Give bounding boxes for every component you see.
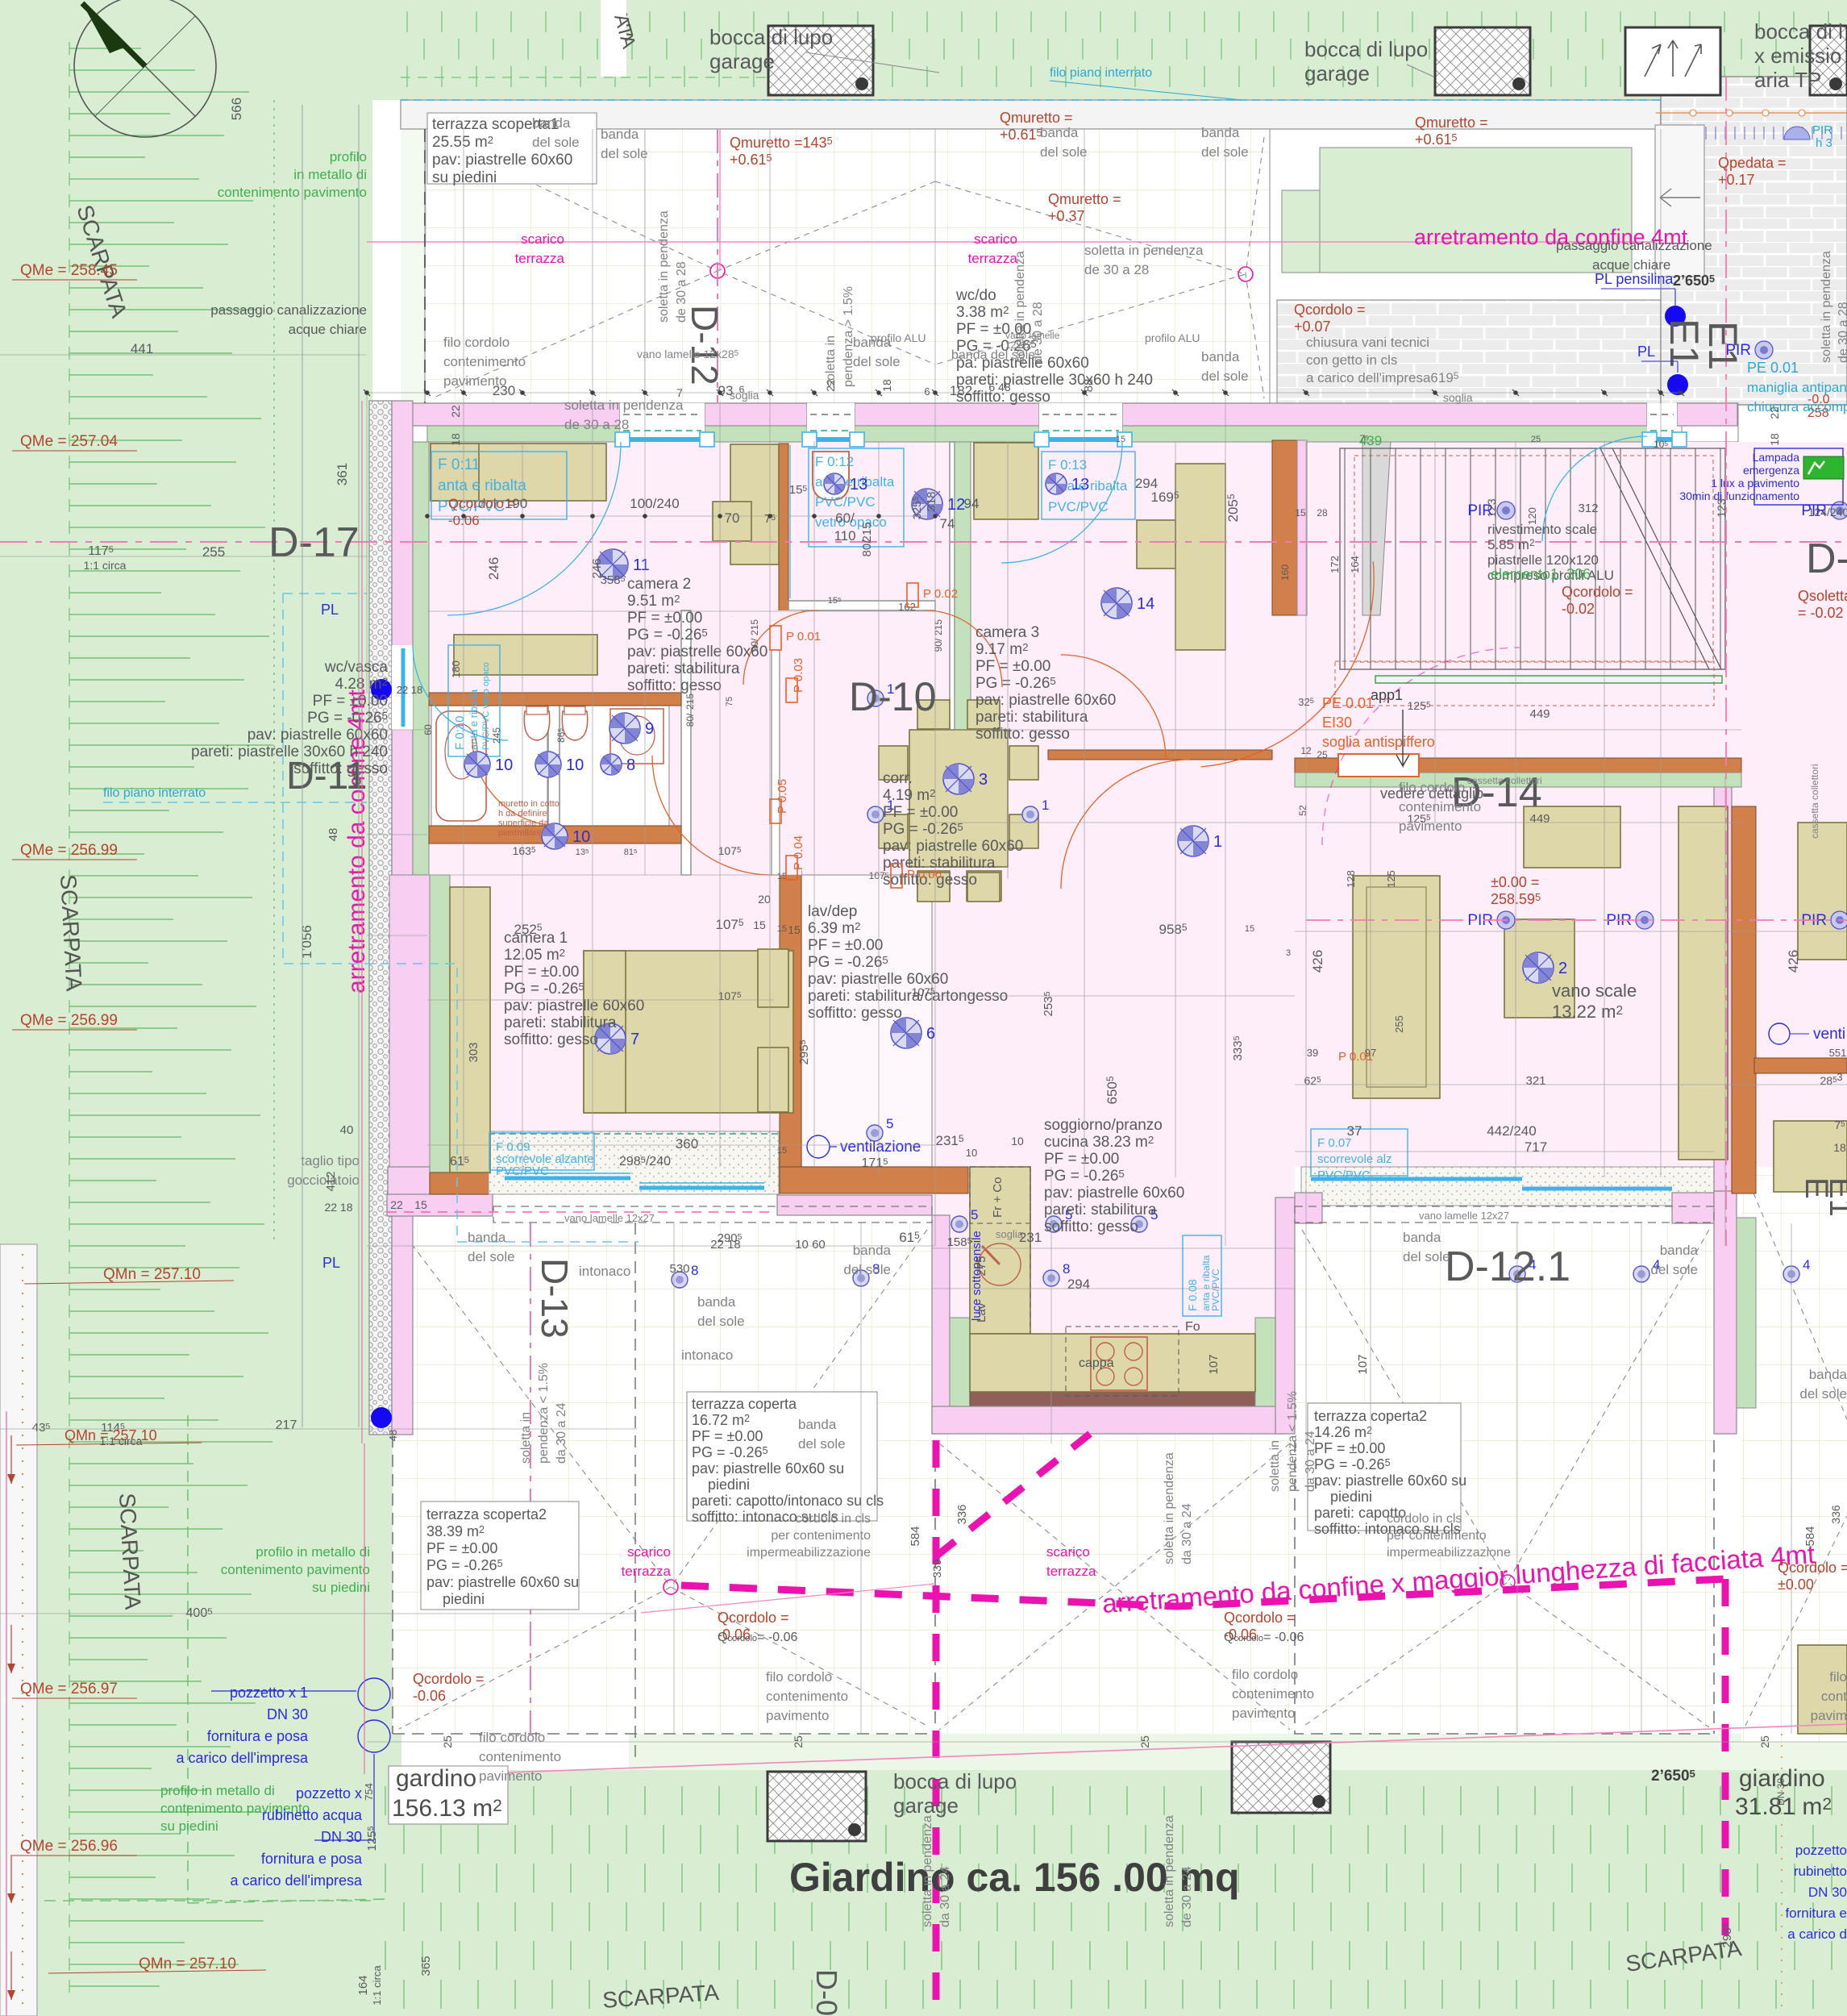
svg-text:3: 3 — [979, 771, 988, 789]
svg-text:15: 15 — [1245, 924, 1254, 934]
svg-text:10 60: 10 60 — [795, 1238, 826, 1252]
svg-text:10: 10 — [572, 828, 590, 846]
svg-text:P 0.01: P 0.01 — [1338, 1050, 1373, 1064]
svg-text:QMe = 256.97: QMe = 256.97 — [20, 1681, 118, 1697]
svg-text:160: 160 — [1279, 564, 1291, 581]
svg-text:3.38 m2: 3.38 m2 — [956, 304, 1009, 321]
svg-text:25.55 m2: 25.55 m2 — [432, 134, 493, 151]
svg-text:449: 449 — [1529, 812, 1550, 826]
svg-text:190: 190 — [505, 496, 527, 511]
svg-text:4.28 m2: 4.28 m2 — [335, 676, 389, 693]
svg-text:de 30 a 28: de 30 a 28 — [564, 417, 629, 432]
svg-text:P 0.05: P 0.05 — [776, 779, 789, 814]
svg-text:del sole: del sole — [798, 1436, 846, 1452]
svg-text:vano lamelle 12x285: vano lamelle 12x285 — [637, 348, 739, 360]
svg-text:6: 6 — [926, 1025, 935, 1043]
svg-text:110: 110 — [834, 528, 855, 544]
svg-text:25: 25 — [1531, 435, 1541, 444]
svg-text:231: 231 — [1019, 1230, 1042, 1245]
svg-text:PF = ±0.00: PF = ±0.00 — [975, 658, 1050, 675]
svg-text:18: 18 — [1768, 433, 1781, 446]
svg-text:filo cordolo: filo cordolo — [1399, 780, 1465, 795]
svg-text:5: 5 — [971, 1207, 978, 1223]
svg-text:pareti: stabilitura/cartongess: pareti: stabilitura/cartongesso — [808, 988, 1008, 1005]
svg-text:6: 6 — [924, 385, 930, 398]
svg-text:22: 22 — [390, 1198, 403, 1211]
svg-text:312: 312 — [1578, 502, 1598, 515]
svg-text:164: 164 — [1349, 556, 1361, 573]
svg-text:14.26 m2: 14.26 m2 — [1314, 1424, 1372, 1440]
svg-text:banda: banda — [1040, 125, 1079, 140]
svg-text:piastrellare: piastrellare — [498, 828, 542, 838]
svg-text:D-17: D-17 — [268, 519, 360, 566]
svg-text:94: 94 — [964, 496, 980, 511]
svg-text:18: 18 — [880, 379, 893, 392]
svg-text:filo: filo — [1829, 1669, 1847, 1685]
svg-text:D-10: D-10 — [849, 674, 936, 719]
svg-text:banda: banda — [1403, 1230, 1441, 1245]
svg-text:del sole: del sole — [1201, 144, 1249, 160]
svg-text:chiusura vani tecnici: chiusura vani tecnici — [1306, 335, 1429, 350]
svg-text:pendenza < 1.5%: pendenza < 1.5% — [1286, 1391, 1300, 1492]
svg-text:PF = ±0.00: PF = ±0.00 — [692, 1428, 763, 1444]
svg-text:garage: garage — [1304, 61, 1370, 85]
svg-text:5: 5 — [352, 771, 362, 789]
svg-text:336: 336 — [955, 1504, 969, 1524]
svg-text:passaggio canalizzazione: passaggio canalizzazione — [1556, 238, 1712, 253]
svg-text:banda: banda — [697, 1294, 736, 1310]
svg-text:PE 0.01: PE 0.01 — [1322, 695, 1374, 711]
svg-text:40: 40 — [340, 1123, 354, 1137]
svg-text:10: 10 — [566, 756, 584, 774]
svg-text:taglio tipo: taglio tipo — [301, 1153, 360, 1168]
svg-text:DN 30: DN 30 — [1775, 1778, 1787, 1806]
svg-text:217: 217 — [276, 1418, 297, 1432]
svg-text:profilo in metallo di: profilo in metallo di — [160, 1783, 275, 1798]
svg-text:contenimento: contenimento — [479, 1749, 561, 1764]
svg-text:pav: piastrelle 60x60: pav: piastrelle 60x60 — [627, 644, 768, 660]
svg-text:80/: 80/ — [684, 713, 696, 727]
svg-text:banda: banda — [601, 127, 639, 142]
svg-text:pavimento: pavimento — [766, 1708, 829, 1723]
svg-text:11: 11 — [633, 556, 650, 574]
svg-text:D-13: D-13 — [534, 1258, 576, 1339]
svg-text:h da definire: h da definire — [498, 809, 547, 818]
svg-text:passaggio canalizzazione: passaggio canalizzazione — [210, 302, 367, 318]
svg-text:terrazza: terrazza — [968, 251, 1018, 266]
svg-text:pendenza > 1.5%: pendenza > 1.5% — [842, 286, 855, 387]
svg-text:P 0.02: P 0.02 — [923, 587, 958, 601]
svg-text:30min di funzionamento: 30min di funzionamento — [1679, 489, 1799, 502]
svg-text:294: 294 — [1067, 1277, 1090, 1292]
svg-text:su piedini: su piedini — [432, 169, 497, 186]
svg-text:100/240: 100/240 — [630, 496, 679, 511]
svg-text:bocca di lupo: bocca di lupo — [1304, 37, 1428, 61]
svg-text:D-12.1: D-12.1 — [1445, 1243, 1570, 1290]
svg-text:1: 1 — [1042, 798, 1049, 813]
svg-text:+0.615: +0.615 — [1415, 131, 1458, 148]
svg-text:DN 30: DN 30 — [1808, 1885, 1847, 1900]
svg-text:12x22: 12x22 — [1005, 339, 1032, 351]
svg-text:piedini: piedini — [426, 1591, 485, 1607]
svg-text:vano lamelle 12x27: vano lamelle 12x27 — [1419, 1210, 1509, 1222]
svg-text:60/: 60/ — [835, 510, 855, 526]
svg-text:584: 584 — [909, 1526, 922, 1546]
svg-text:impermeabilizzazione: impermeabilizzazione — [747, 1546, 871, 1560]
svg-text:75: 75 — [725, 697, 734, 706]
svg-text:filo piano interrato: filo piano interrato — [1050, 66, 1152, 80]
svg-text:pav: piastrelle 60x60: pav: piastrelle 60x60 — [432, 152, 572, 169]
svg-text:fornitura e posa: fornitura e posa — [207, 1728, 309, 1744]
svg-text:22: 22 — [449, 405, 462, 418]
svg-text:del sole: del sole — [601, 146, 648, 161]
svg-text:13: 13 — [1071, 476, 1089, 494]
svg-text:del sole: del sole — [468, 1249, 515, 1264]
svg-text:18: 18 — [1833, 1141, 1846, 1154]
svg-text:soletta in pendenza: soletta in pendenza — [657, 210, 671, 323]
svg-text:Fr + Co: Fr + Co — [991, 1177, 1005, 1218]
svg-text:scarico: scarico — [974, 231, 1017, 247]
svg-text:+0.615: +0.615 — [730, 152, 772, 168]
svg-text:banda: banda — [1660, 1243, 1699, 1258]
svg-text:contenimento: contenimento — [766, 1689, 848, 1704]
svg-text:intonaco: intonaco — [579, 1264, 630, 1279]
svg-text:182: 182 — [950, 383, 972, 398]
svg-text:2985/240: 2985/240 — [619, 1155, 671, 1168]
svg-text:profilo: profilo — [330, 149, 367, 165]
svg-text:lav/dep: lav/dep — [808, 903, 857, 920]
svg-text:107: 107 — [1356, 1354, 1370, 1374]
svg-text:contenimento: contenimento — [443, 354, 526, 369]
svg-text:15: 15 — [788, 923, 801, 936]
svg-text:PF = ±0.00: PF = ±0.00 — [426, 1540, 497, 1556]
svg-text:PE 0.01: PE 0.01 — [1747, 360, 1799, 376]
svg-text:PL: PL — [1637, 344, 1655, 360]
svg-text:filo piano interrato: filo piano interrato — [103, 786, 206, 800]
svg-text:soletta in pendenza: soletta in pendenza — [564, 398, 684, 413]
svg-text:del sole: del sole — [1799, 1386, 1847, 1402]
svg-text:PF = ±0.00: PF = ±0.00 — [627, 610, 702, 627]
svg-text:14: 14 — [1137, 595, 1154, 613]
svg-text:venti: venti — [1813, 1026, 1845, 1043]
svg-text:-0.06: -0.06 — [413, 1688, 446, 1704]
svg-text:22: 22 — [824, 379, 837, 392]
svg-text:con getto in cls: con getto in cls — [1306, 352, 1397, 368]
svg-text:emergenza: emergenza — [1743, 464, 1799, 477]
svg-text:10: 10 — [495, 756, 513, 774]
svg-text:QMe = 257.04: QMe = 257.04 — [20, 433, 118, 450]
svg-text:del sole: del sole — [1040, 144, 1088, 160]
svg-text:128: 128 — [1345, 870, 1357, 888]
svg-text:566: 566 — [229, 98, 244, 120]
svg-text:anta e ribalta: anta e ribalta — [468, 689, 480, 750]
svg-text:124/240: 124/240 — [1808, 506, 1847, 519]
svg-text:8: 8 — [1063, 1261, 1070, 1277]
svg-text:215: 215 — [860, 522, 874, 542]
svg-text:soletta in pendenza: soletta in pendenza — [921, 1815, 934, 1927]
svg-text:fornitura e posa: fornitura e posa — [261, 1851, 363, 1867]
svg-text:360: 360 — [676, 1136, 698, 1152]
svg-text:F 0:11: F 0:11 — [438, 456, 480, 473]
svg-text:D-0: D-0 — [810, 1969, 843, 2016]
svg-text:in metallo di: in metallo di — [293, 167, 367, 182]
svg-text:terrazza scoperta2: terrazza scoperta2 — [426, 1506, 547, 1522]
svg-text:15: 15 — [1116, 435, 1125, 444]
svg-text:412: 412 — [324, 1171, 338, 1191]
svg-text:48: 48 — [387, 1430, 399, 1441]
svg-text:125: 125 — [1385, 870, 1397, 888]
svg-text:Fo: Fo — [1185, 1320, 1200, 1334]
svg-text:PF = ±0.00: PF = ±0.00 — [1044, 1151, 1119, 1168]
svg-text:banda: banda — [532, 115, 571, 131]
svg-text:soletta in: soletta in — [519, 1412, 533, 1464]
svg-text:164: 164 — [356, 1975, 370, 1995]
svg-text:QMn = 257.10: QMn = 257.10 — [139, 1956, 236, 1972]
svg-text:per contenimento: per contenimento — [1387, 1529, 1487, 1543]
svg-text:12: 12 — [947, 496, 965, 514]
svg-text:Qmuretto =: Qmuretto = — [1415, 115, 1488, 131]
svg-text:profilo ALU: profilo ALU — [871, 331, 926, 344]
svg-text:88: 88 — [1082, 379, 1096, 393]
svg-text:246: 246 — [590, 558, 604, 578]
svg-text:336: 336 — [1829, 1505, 1842, 1524]
svg-text:soletta in pendenza: soletta in pendenza — [1820, 251, 1833, 363]
svg-text:a carico dell'impresa: a carico dell'impresa — [230, 1872, 362, 1889]
svg-text:PL pensilina: PL pensilina — [1595, 271, 1674, 287]
svg-text:18: 18 — [449, 433, 462, 446]
svg-text:terrazza: terrazza — [1046, 1564, 1096, 1579]
svg-text:255: 255 — [202, 544, 225, 560]
svg-text:15: 15 — [777, 924, 787, 934]
svg-text:+0.17: +0.17 — [1718, 172, 1755, 188]
svg-text:banda: banda — [1809, 1367, 1847, 1382]
svg-text:3: 3 — [1286, 948, 1291, 958]
svg-text:120: 120 — [1526, 507, 1538, 525]
svg-text:PG = -0.265: PG = -0.265 — [975, 675, 1056, 692]
svg-text:de 30 a 28: de 30 a 28 — [1084, 262, 1149, 277]
svg-text:soffitto: gesso: soffitto: gesso — [808, 1005, 902, 1022]
svg-text:su piedini: su piedini — [312, 1580, 370, 1595]
svg-text:pav: piastrelle 60x60 su: pav: piastrelle 60x60 su — [692, 1460, 844, 1477]
svg-text:318: 318 — [925, 491, 938, 511]
svg-text:+0.37: +0.37 — [1048, 208, 1085, 224]
svg-text:de 30 a 28: de 30 a 28 — [675, 261, 688, 323]
svg-text:PF = ±0.00: PF = ±0.00 — [808, 937, 883, 954]
svg-text:anta e ribalta: anta e ribalta — [438, 477, 526, 494]
svg-text:pareti: stabilitura: pareti: stabilitura — [504, 1014, 617, 1031]
svg-text:12.05 m2: 12.05 m2 — [504, 947, 565, 964]
svg-text:maniglia antipan: maniglia antipan — [1747, 380, 1847, 395]
svg-text:Lampada: Lampada — [1753, 451, 1800, 464]
svg-text:PF = ±0.00: PF = ±0.00 — [504, 964, 579, 981]
svg-text:pareti: capotto/intonaco su cl: pareti: capotto/intonaco su cls — [692, 1493, 884, 1509]
svg-text:7: 7 — [630, 1031, 639, 1048]
svg-text:Qmuretto =: Qmuretto = — [1000, 110, 1073, 126]
svg-text:de 30 a 28: de 30 a 28 — [1837, 302, 1847, 363]
svg-text:E1: E1 — [1662, 319, 1707, 368]
svg-text:PVC/PVC: PVC/PVC — [1317, 1168, 1371, 1182]
svg-text:Qcordolo =: Qcordolo = — [413, 1671, 485, 1687]
svg-text:Qsoletta g: Qsoletta g — [1798, 588, 1847, 604]
svg-text:F 0.08: F 0.08 — [1186, 1279, 1199, 1311]
svg-text:camera 2: camera 2 — [627, 576, 691, 593]
svg-text:QMn = 257.10: QMn = 257.10 — [103, 1266, 201, 1283]
svg-text:del sole: del sole — [697, 1314, 745, 1329]
svg-text:da 30 a 24: da 30 a 24 — [555, 1402, 568, 1464]
svg-text:pav: piastrelle 60x60: pav: piastrelle 60x60 — [975, 692, 1116, 709]
svg-text:contenimento pavimento: contenimento pavimento — [218, 185, 367, 200]
svg-text:339: 339 — [930, 1559, 943, 1578]
svg-text:2’6505: 2’6505 — [1651, 1768, 1696, 1785]
svg-text:15: 15 — [777, 1146, 787, 1156]
svg-text:su piedini: su piedini — [160, 1818, 218, 1834]
svg-text:vano scale: vano scale — [1552, 981, 1637, 1001]
svg-text:QMe = 256.96: QMe = 256.96 — [20, 1838, 118, 1855]
svg-text:app1: app1 — [1371, 687, 1403, 703]
svg-text:pav: piastrelle 60x60: pav: piastrelle 60x60 — [248, 727, 388, 744]
svg-text:E1: E1 — [1700, 321, 1745, 370]
svg-text:246: 246 — [486, 557, 501, 580]
svg-text:soletta in pendenza: soletta in pendenza — [1163, 1815, 1176, 1927]
svg-text:4.19 m2: 4.19 m2 — [883, 787, 936, 804]
svg-text:soletta in: soletta in — [1268, 1440, 1282, 1492]
svg-text:Qcordolo =: Qcordolo = — [1224, 1610, 1296, 1626]
svg-text:del sole: del sole — [1650, 1262, 1698, 1277]
svg-text:pav: piastrelle 60x60 su: pav: piastrelle 60x60 su — [426, 1574, 579, 1590]
svg-text:profilo ALU: profilo ALU — [1145, 331, 1200, 344]
svg-text:chiusura accomp: chiusura accomp — [1747, 399, 1847, 414]
svg-text:gardino: gardino — [396, 1765, 476, 1792]
svg-text:13.22 m2: 13.22 m2 — [1552, 1002, 1623, 1022]
svg-text:h 3: h 3 — [1816, 136, 1832, 150]
svg-text:soletta in pendenza: soletta in pendenza — [1163, 1452, 1176, 1564]
svg-text:1’056: 1’056 — [299, 925, 314, 959]
svg-text:Qmuretto =1435: Qmuretto =1435 — [730, 135, 833, 151]
svg-text:303: 303 — [467, 1042, 480, 1062]
svg-text:cordolo in cls: cordolo in cls — [796, 1512, 871, 1526]
svg-text:PF = ±0.00: PF = ±0.00 — [883, 804, 958, 821]
svg-text:terrazza: terrazza — [515, 251, 565, 266]
svg-text:16.72 m2: 16.72 m2 — [692, 1412, 750, 1428]
svg-text:per contenimento: per contenimento — [771, 1529, 871, 1543]
svg-text:pavim: pavim — [1811, 1708, 1847, 1723]
svg-text:del sole: del sole — [1403, 1249, 1450, 1264]
svg-text:filo cordolo: filo cordolo — [766, 1669, 832, 1685]
svg-text:pavimento: pavimento — [1232, 1706, 1295, 1721]
svg-text:muretto in cotto: muretto in cotto — [498, 799, 560, 809]
svg-text:cassetta collettori: cassetta collettori — [1809, 764, 1820, 839]
svg-text:PG = -0.265: PG = -0.265 — [426, 1557, 503, 1573]
svg-text:ventilazione: ventilazione — [840, 1139, 921, 1156]
svg-text:PG = -0.265: PG = -0.265 — [307, 710, 388, 727]
svg-text:1:1 circa: 1:1 circa — [100, 1435, 143, 1447]
svg-text:74: 74 — [940, 516, 955, 531]
svg-text:P 0.04: P 0.04 — [792, 835, 805, 870]
svg-text:filo cordolo: filo cordolo — [479, 1730, 545, 1745]
svg-text:da 30 a 24: da 30 a 24 — [1304, 1431, 1317, 1492]
svg-text:pavimento: pavimento — [479, 1768, 542, 1784]
svg-text:PG = -0.265: PG = -0.265 — [883, 821, 963, 838]
svg-text:impermeabilizzazione: impermeabilizzazione — [1387, 1546, 1511, 1560]
svg-text:156.13 m2: 156.13 m2 — [392, 1795, 502, 1822]
svg-text:39: 39 — [1307, 1047, 1318, 1059]
svg-text:25: 25 — [1317, 749, 1328, 760]
svg-text:pareti: stabilitura: pareti: stabilitura — [627, 660, 740, 677]
svg-text:PL: PL — [322, 1255, 340, 1271]
svg-text:= -0.02: = -0.02 — [1798, 605, 1844, 621]
svg-text:6 48: 6 48 — [988, 381, 1010, 394]
svg-text:soffitto: gesso: soffitto: gesso — [1044, 1218, 1138, 1235]
svg-text:soletta in pendenza: soletta in pendenza — [1084, 243, 1204, 258]
svg-text:Qcordolo =: Qcordolo = — [1778, 1560, 1847, 1576]
svg-text:230: 230 — [493, 383, 515, 398]
svg-text:PG = -0.265: PG = -0.265 — [808, 954, 888, 971]
svg-text:contenimento pavimento: contenimento pavimento — [221, 1562, 370, 1577]
svg-text:banda: banda — [1201, 125, 1240, 140]
svg-text:filo cordolo: filo cordolo — [443, 335, 510, 350]
svg-text:5515: 5515 — [1829, 1047, 1847, 1059]
svg-text:P 0.06: P 0.06 — [907, 868, 942, 881]
svg-text:6: 6 — [739, 384, 745, 395]
svg-text:1:1 circa: 1:1 circa — [371, 1965, 383, 2006]
svg-text:del sole: del sole — [853, 354, 901, 369]
svg-text:pareti: stabilitura: pareti: stabilitura — [1044, 1202, 1157, 1218]
svg-text:rubinetto acqua: rubinetto acqua — [262, 1807, 363, 1823]
svg-text:cassetta collettori: cassetta collettori — [1467, 775, 1542, 786]
svg-text:+0.07: +0.07 — [1294, 319, 1331, 335]
svg-text:426: 426 — [1786, 950, 1801, 973]
svg-text:soffitto: gesso: soffitto: gesso — [504, 1031, 598, 1048]
svg-text:banda: banda — [798, 1417, 837, 1432]
svg-text:da 30 a 24: da 30 a 24 — [938, 1866, 952, 1927]
svg-text:90/: 90/ — [933, 638, 944, 652]
svg-text:PIR: PIR — [1812, 123, 1832, 137]
svg-text:pav: piastrelle 60x60 su: pav: piastrelle 60x60 su — [1314, 1472, 1466, 1489]
svg-text:DN 30: DN 30 — [267, 1706, 308, 1722]
svg-text:cucina 38.23 m2: cucina 38.23 m2 — [1044, 1134, 1154, 1151]
svg-text:5: 5 — [886, 1116, 893, 1131]
svg-text:pozzetto: pozzetto — [1795, 1843, 1847, 1858]
svg-text:DN 30: DN 30 — [321, 1829, 362, 1845]
svg-text:soglia antispiffero: soglia antispiffero — [1322, 734, 1435, 750]
svg-text:PG = -0.265: PG = -0.265 — [627, 627, 708, 644]
svg-text:soglia: soglia — [730, 389, 759, 402]
svg-text:15: 15 — [414, 1198, 427, 1211]
svg-text:1: 1 — [1213, 833, 1222, 851]
svg-text:Qcordolo =: Qcordolo = — [1562, 584, 1633, 600]
svg-text:+0.615: +0.615 — [1000, 127, 1042, 143]
svg-text:9: 9 — [645, 720, 654, 738]
svg-text:piedini: piedini — [692, 1477, 750, 1493]
svg-text:PG = -0.265: PG = -0.265 — [692, 1444, 768, 1460]
svg-text:banda: banda — [1201, 349, 1240, 364]
svg-text:P 0.03: P 0.03 — [792, 658, 805, 693]
svg-text:275: 275 — [975, 1256, 988, 1276]
svg-text:PF = ±0.00: PF = ±0.00 — [1314, 1440, 1385, 1456]
svg-text:cappa: cappa — [1079, 1356, 1114, 1370]
svg-text:PG = -0.265: PG = -0.265 — [504, 981, 584, 998]
svg-text:754: 754 — [363, 1783, 375, 1801]
svg-text:PF = ±0.00: PF = ±0.00 — [313, 693, 388, 710]
svg-text:cordolo in cls: cordolo in cls — [1387, 1512, 1462, 1526]
svg-text:banda: banda — [853, 1243, 892, 1258]
svg-text:da 30 a 24: da 30 a 24 — [1180, 1503, 1194, 1564]
svg-text:38.39 m2: 38.39 m2 — [426, 1523, 485, 1539]
svg-text:scarico: scarico — [627, 1544, 671, 1560]
svg-text:245: 245 — [491, 727, 502, 744]
svg-text:wc/vasca: wc/vasca — [324, 659, 389, 676]
svg-text:scarico: scarico — [1046, 1544, 1090, 1560]
